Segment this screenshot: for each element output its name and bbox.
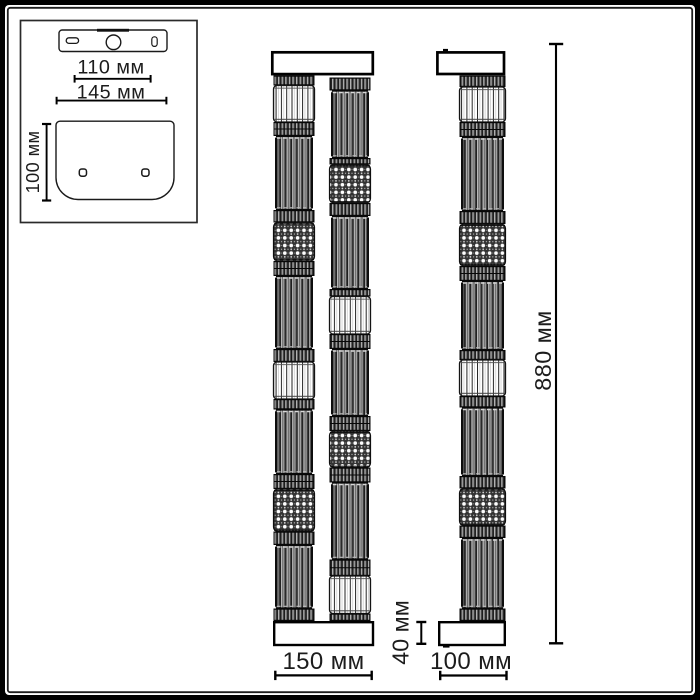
svg-text:40 мм: 40 мм: [388, 600, 414, 664]
svg-text:150 мм: 150 мм: [282, 648, 364, 675]
svg-text:100 мм: 100 мм: [23, 131, 43, 194]
svg-text:880 мм: 880 мм: [530, 310, 556, 390]
svg-text:110 мм: 110 мм: [77, 57, 144, 79]
svg-text:100 мм: 100 мм: [430, 648, 512, 675]
